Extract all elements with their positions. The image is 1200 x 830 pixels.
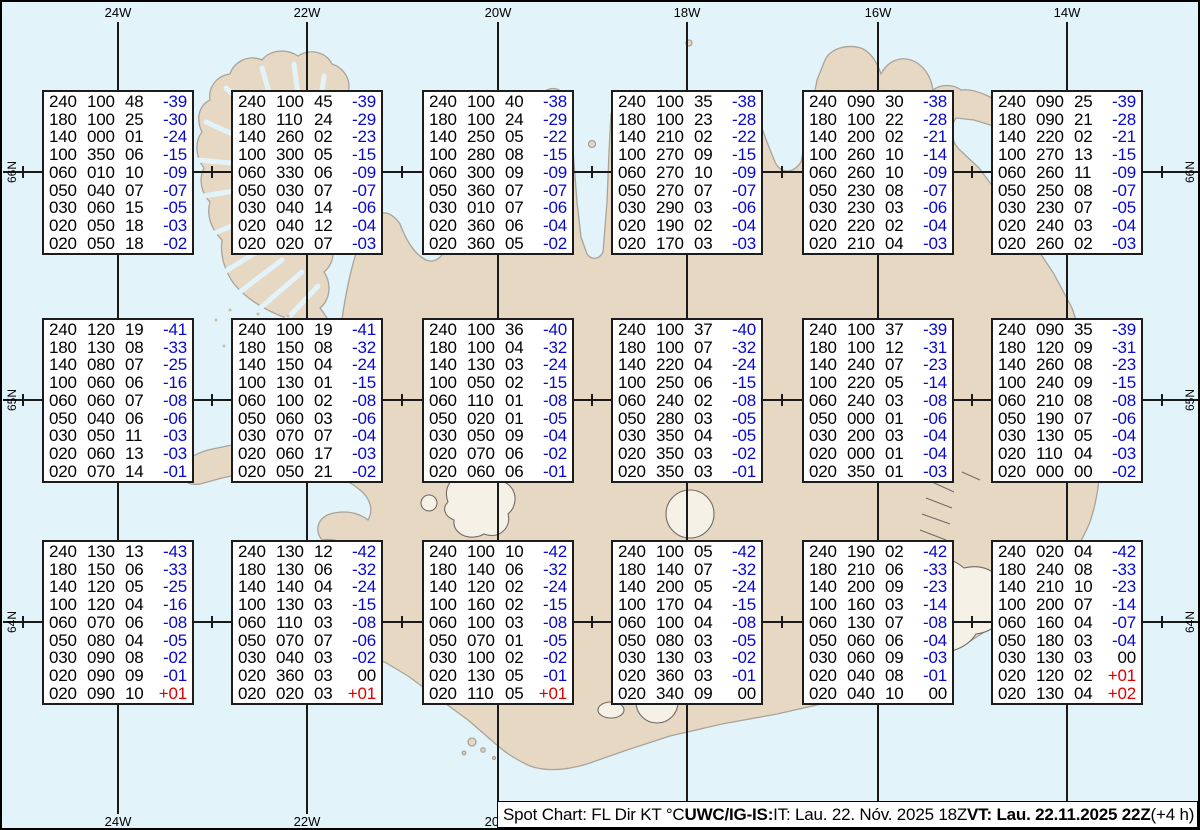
wind-direction-value: 260 (276, 128, 306, 146)
temperature-value: -05 (535, 410, 567, 428)
wind-direction-value: 230 (1036, 199, 1066, 217)
spot-table-row: 06024002-08 (618, 392, 756, 410)
wind-speed-value: 12 (314, 543, 336, 561)
temperature-value: -04 (915, 445, 947, 463)
spot-table-row: 18010022-28 (809, 111, 947, 129)
wind-speed-value: 02 (1074, 667, 1096, 685)
temperature-value: -15 (535, 146, 567, 164)
temperature-value: -15 (535, 374, 567, 392)
flight-level-value: 030 (998, 199, 1028, 217)
flight-level-value: 060 (238, 392, 268, 410)
spot-table-row: 06033006-09 (238, 164, 376, 182)
wind-speed-value: 03 (885, 392, 907, 410)
wind-direction-value: 100 (276, 392, 306, 410)
spot-table-row: 06011001-08 (429, 392, 567, 410)
temperature-value: -07 (915, 182, 947, 200)
temperature-value: -32 (535, 561, 567, 579)
spot-table-row: 06007006-08 (49, 614, 187, 632)
flight-level-value: 180 (998, 339, 1028, 357)
temperature-value: -28 (1104, 111, 1136, 129)
spot-table-row: 10027013-15 (998, 146, 1136, 164)
wind-speed-value: 04 (505, 339, 527, 357)
flight-level-value: 240 (998, 321, 1028, 339)
wind-speed-value: 02 (885, 217, 907, 235)
temperature-value: -15 (724, 146, 756, 164)
wind-direction-value: 120 (1036, 339, 1066, 357)
flight-level-value: 180 (238, 561, 268, 579)
spot-table-row: 02013005-01 (429, 667, 567, 685)
flight-level-value: 050 (238, 410, 268, 428)
spot-table-row: 14020002-21 (809, 128, 947, 146)
wind-direction-value: 040 (87, 182, 117, 200)
wind-direction-value: 050 (467, 427, 497, 445)
wind-speed-value: 08 (885, 182, 907, 200)
wind-direction-value: 120 (87, 578, 117, 596)
flight-level-value: 100 (429, 374, 459, 392)
wind-speed-value: 06 (694, 374, 716, 392)
temperature-value: -06 (344, 199, 376, 217)
wind-speed-value: 03 (694, 463, 716, 481)
wind-direction-value: 100 (656, 614, 686, 632)
flight-level-value: 240 (809, 321, 839, 339)
spot-table-row: 02017003-03 (618, 235, 756, 253)
temperature-value: -08 (1104, 392, 1136, 410)
graticule-cross-tick (22, 166, 24, 178)
spot-table: 24009025-3918009021-2814022002-211002701… (991, 90, 1143, 255)
spot-table: 24010048-3918010025-3014000001-241003500… (42, 90, 194, 255)
wind-direction-value: 090 (87, 685, 117, 703)
temperature-value: -06 (915, 199, 947, 217)
spot-table-row: 10022005-14 (809, 374, 947, 392)
spot-table-row: 14012002-24 (429, 578, 567, 596)
wind-direction-value: 130 (1036, 649, 1066, 667)
wind-direction-value: 090 (87, 649, 117, 667)
spot-table-row: 03013005-04 (998, 427, 1136, 445)
temperature-value: -04 (724, 217, 756, 235)
wind-speed-value: 05 (505, 667, 527, 685)
flight-level-value: 020 (429, 445, 459, 463)
wind-speed-value: 01 (885, 463, 907, 481)
flight-level-value: 030 (49, 649, 79, 667)
wind-speed-value: 03 (1074, 649, 1096, 667)
spot-table-row: 03013003-02 (618, 649, 756, 667)
spot-table-row: 05004006-06 (49, 410, 187, 428)
wind-speed-value: 02 (694, 392, 716, 410)
flight-level-value: 100 (998, 146, 1028, 164)
temperature-value: 00 (344, 667, 376, 685)
longitude-label-top: 24W (98, 5, 138, 20)
wind-direction-value: 060 (87, 374, 117, 392)
wind-direction-value: 080 (87, 356, 117, 374)
temperature-value: -02 (344, 463, 376, 481)
wind-direction-value: 240 (656, 392, 686, 410)
spot-table: 24009030-3818010022-2814020002-211002601… (802, 90, 954, 255)
flight-level-value: 180 (49, 561, 79, 579)
flight-level-value: 240 (429, 321, 459, 339)
wind-speed-value: 04 (125, 596, 147, 614)
temperature-value: -23 (344, 128, 376, 146)
temperature-value: -28 (724, 111, 756, 129)
spot-table-row: 05036007-07 (429, 182, 567, 200)
temperature-value: -40 (535, 321, 567, 339)
wind-speed-value: 03 (314, 667, 336, 685)
wind-speed-value: 17 (314, 445, 336, 463)
temperature-value: -06 (1104, 410, 1136, 428)
spot-table-row: 02012002+01 (998, 667, 1136, 685)
spot-table-row: 14012005-25 (49, 578, 187, 596)
temperature-value: -08 (344, 392, 376, 410)
spot-table-row: 02026002-03 (998, 235, 1136, 253)
temperature-value: -21 (1104, 128, 1136, 146)
wind-speed-value: 24 (505, 111, 527, 129)
wind-speed-value: 07 (505, 199, 527, 217)
temperature-value: -05 (724, 427, 756, 445)
flight-level-value: 240 (238, 543, 268, 561)
wind-speed-value: 08 (1074, 356, 1096, 374)
spot-table-row: 14008007-25 (49, 356, 187, 374)
flight-level-value: 140 (49, 356, 79, 374)
spot-table-row: 18010012-31 (809, 339, 947, 357)
flight-level-value: 180 (618, 111, 648, 129)
spot-table-row: 06027010-09 (618, 164, 756, 182)
flight-level-value: 060 (618, 614, 648, 632)
spot-table: 24019002-4218021006-3314020009-231001600… (802, 540, 954, 705)
spot-table-row: 18011024-29 (238, 111, 376, 129)
spot-table-row: 18024008-33 (998, 561, 1136, 579)
spot-table-row: 02036003-01 (618, 667, 756, 685)
spot-table-row: 14015004-24 (238, 356, 376, 374)
flight-level-value: 100 (998, 374, 1028, 392)
flight-level-value: 020 (49, 217, 79, 235)
temperature-value: -38 (915, 93, 947, 111)
wind-speed-value: 06 (505, 561, 527, 579)
spot-table-row: 24010037-39 (809, 321, 947, 339)
spot-table: 24010036-4018010004-3214013003-241000500… (422, 318, 574, 483)
flight-level-value: 180 (429, 561, 459, 579)
wind-speed-value: 03 (314, 685, 336, 703)
graticule-cross-tick (1161, 616, 1163, 628)
flight-level-value: 030 (238, 199, 268, 217)
wind-speed-value: 04 (694, 356, 716, 374)
spot-table-row: 06011003-08 (238, 614, 376, 632)
temperature-value: -08 (724, 614, 756, 632)
temperature-value: -01 (155, 667, 187, 685)
flight-level-value: 240 (998, 93, 1028, 111)
wind-direction-value: 270 (1036, 146, 1066, 164)
wind-direction-value: 100 (467, 649, 497, 667)
flight-level-value: 020 (49, 667, 79, 685)
temperature-value: -14 (915, 374, 947, 392)
wind-speed-value: 05 (125, 578, 147, 596)
flight-level-value: 180 (429, 111, 459, 129)
wind-speed-value: 06 (314, 561, 336, 579)
spot-table-row: 18015008-32 (238, 339, 376, 357)
flight-level-value: 050 (49, 182, 79, 200)
flight-level-value: 180 (809, 561, 839, 579)
temperature-value: -30 (155, 111, 187, 129)
spot-table-row: 24010010-42 (429, 543, 567, 561)
wind-direction-value: 120 (1036, 667, 1066, 685)
graticule-cross-tick (211, 166, 213, 178)
temperature-value: -02 (724, 649, 756, 667)
wind-speed-value: 03 (314, 614, 336, 632)
westman-island (462, 751, 466, 755)
flight-level-value: 140 (429, 128, 459, 146)
spot-table-row: 02007014-01 (49, 463, 187, 481)
wind-direction-value: 240 (847, 356, 877, 374)
spot-table-row: 02036006-04 (429, 217, 567, 235)
wind-direction-value: 010 (467, 199, 497, 217)
wind-direction-value: 350 (656, 463, 686, 481)
temperature-value: -02 (155, 235, 187, 253)
wind-speed-value: 18 (125, 235, 147, 253)
temperature-value: -08 (155, 392, 187, 410)
wind-direction-value: 250 (656, 374, 686, 392)
flight-level-value: 060 (49, 614, 79, 632)
flight-level-value: 240 (809, 543, 839, 561)
flight-level-value: 180 (618, 339, 648, 357)
flight-level-value: 030 (238, 427, 268, 445)
wind-speed-value: 02 (1074, 235, 1096, 253)
hrisey-island (589, 141, 596, 148)
wind-speed-value: 19 (125, 321, 147, 339)
wind-direction-value: 100 (467, 543, 497, 561)
spot-table-row: 14024007-23 (809, 356, 947, 374)
spot-table-row: 05004007-07 (49, 182, 187, 200)
temperature-value: -03 (915, 649, 947, 667)
wind-speed-value: 07 (694, 182, 716, 200)
temperature-value: -42 (724, 543, 756, 561)
wind-direction-value: 360 (467, 182, 497, 200)
spot-table-row: 10005002-15 (429, 374, 567, 392)
spot-table-row: 06001010-09 (49, 164, 187, 182)
wind-direction-value: 100 (276, 93, 306, 111)
spot-table-row: 18014006-32 (429, 561, 567, 579)
wind-direction-value: 280 (467, 146, 497, 164)
flight-level-value: 030 (618, 427, 648, 445)
spot-table-row: 02035003-02 (618, 445, 756, 463)
flight-level-value: 020 (49, 445, 79, 463)
wind-speed-value: 05 (885, 374, 907, 392)
flight-level-value: 020 (998, 463, 1028, 481)
temperature-value: -09 (1104, 164, 1136, 182)
spot-table: 24010037-4018010007-3214022004-241002500… (611, 318, 763, 483)
wind-speed-value: 06 (125, 561, 147, 579)
temperature-value: -16 (155, 596, 187, 614)
temperature-value: -32 (535, 339, 567, 357)
flight-level-value: 180 (49, 111, 79, 129)
flight-level-value: 020 (809, 217, 839, 235)
wind-direction-value: 280 (656, 410, 686, 428)
flight-level-value: 050 (618, 632, 648, 650)
flight-level-value: 020 (49, 235, 79, 253)
wind-speed-value: 03 (694, 199, 716, 217)
wind-speed-value: 02 (694, 217, 716, 235)
wind-speed-value: 07 (125, 392, 147, 410)
graticule-cross-tick (1161, 394, 1163, 406)
flight-level-value: 100 (49, 374, 79, 392)
flight-level-value: 180 (238, 339, 268, 357)
wind-speed-value: 03 (314, 649, 336, 667)
latitude-label-right: 65N (1183, 389, 1197, 411)
spot-table: 24010045-3918011024-2914026002-231003000… (231, 90, 383, 255)
temperature-value: -32 (344, 561, 376, 579)
wind-speed-value: 06 (125, 410, 147, 428)
wind-direction-value: 050 (276, 463, 306, 481)
wind-speed-value: 35 (1074, 321, 1096, 339)
spot-table: 24002004-4218024008-3314021010-231002000… (991, 540, 1143, 705)
temperature-value: -09 (155, 164, 187, 182)
flight-level-value: 180 (429, 339, 459, 357)
wind-speed-value: 07 (694, 339, 716, 357)
spot-table-row: 10026010-14 (809, 146, 947, 164)
temperature-value: -39 (344, 93, 376, 111)
temperature-value: -05 (724, 632, 756, 650)
flight-level-value: 020 (238, 217, 268, 235)
flight-level-value: 060 (429, 164, 459, 182)
spot-table-row: 03020003-04 (809, 427, 947, 445)
temperature-value: -04 (344, 217, 376, 235)
wind-direction-value: 210 (1036, 392, 1066, 410)
wind-direction-value: 110 (467, 392, 497, 410)
flight-level-value: 240 (618, 543, 648, 561)
spot-table-row: 14022002-21 (998, 128, 1136, 146)
temperature-value: -14 (1104, 596, 1136, 614)
wind-speed-value: 03 (505, 614, 527, 632)
flight-level-value: 180 (998, 111, 1028, 129)
wind-speed-value: 07 (314, 235, 336, 253)
temperature-value: -04 (915, 632, 947, 650)
flight-level-value: 140 (809, 128, 839, 146)
wind-speed-value: 04 (1074, 445, 1096, 463)
temperature-value: -02 (344, 649, 376, 667)
flight-level-value: 100 (809, 596, 839, 614)
wind-speed-value: 14 (314, 199, 336, 217)
caption-bold-text: UWC/IG-IS: (685, 805, 774, 825)
spot-table-row: 05007007-06 (238, 632, 376, 650)
spot-table-row: 0301300300 (998, 649, 1136, 667)
flight-level-value: 020 (238, 235, 268, 253)
wind-speed-value: 08 (125, 339, 147, 357)
wind-direction-value: 050 (87, 217, 117, 235)
wind-direction-value: 100 (87, 111, 117, 129)
flight-level-value: 100 (429, 596, 459, 614)
temperature-value: -06 (155, 410, 187, 428)
graticule-cross-tick (1161, 166, 1163, 178)
wind-speed-value: 25 (125, 111, 147, 129)
spot-table: 24010040-3818010024-2914025005-221002800… (422, 90, 574, 255)
wind-speed-value: 02 (885, 128, 907, 146)
caption-text: Spot Chart: FL Dir KT °C (503, 805, 685, 825)
wind-direction-value: 100 (467, 321, 497, 339)
wind-speed-value: 03 (1074, 217, 1096, 235)
wind-speed-value: 00 (1074, 463, 1096, 481)
flight-level-value: 050 (998, 632, 1028, 650)
temperature-value: -15 (155, 146, 187, 164)
temperature-value: -07 (344, 182, 376, 200)
wind-direction-value: 220 (847, 217, 877, 235)
spot-table-row: 10030005-15 (238, 146, 376, 164)
spot-table-row: 03009008-02 (49, 649, 187, 667)
temperature-value: -32 (344, 339, 376, 357)
wind-speed-value: 05 (505, 235, 527, 253)
spot-table-row: 14014004-24 (238, 578, 376, 596)
wind-direction-value: 070 (467, 632, 497, 650)
flight-level-value: 020 (238, 667, 268, 685)
spot-table-row: 02007006-02 (429, 445, 567, 463)
wind-speed-value: 09 (694, 685, 716, 703)
graticule-cross-tick (591, 166, 593, 178)
wind-direction-value: 100 (467, 614, 497, 632)
temperature-value: -40 (724, 321, 756, 339)
wind-direction-value: 090 (1036, 93, 1066, 111)
flight-level-value: 020 (998, 235, 1028, 253)
wind-speed-value: 18 (125, 217, 147, 235)
flight-level-value: 020 (618, 217, 648, 235)
wind-direction-value: 070 (87, 614, 117, 632)
wind-direction-value: 080 (656, 632, 686, 650)
wind-speed-value: 05 (314, 146, 336, 164)
wind-direction-value: 050 (87, 427, 117, 445)
wind-direction-value: 080 (87, 632, 117, 650)
wind-speed-value: 07 (885, 356, 907, 374)
temperature-value: -02 (724, 445, 756, 463)
wind-direction-value: 200 (656, 578, 686, 596)
wind-direction-value: 120 (467, 578, 497, 596)
wind-speed-value: 03 (694, 235, 716, 253)
flight-level-value: 240 (49, 543, 79, 561)
wind-speed-value: 04 (125, 632, 147, 650)
wind-direction-value: 040 (87, 410, 117, 428)
wind-direction-value: 120 (87, 596, 117, 614)
flight-level-value: 020 (998, 667, 1028, 685)
temperature-value: 00 (724, 685, 756, 703)
wind-direction-value: 140 (276, 578, 306, 596)
flight-level-value: 060 (49, 164, 79, 182)
wind-speed-value: 03 (314, 596, 336, 614)
westman-island (481, 748, 485, 752)
temperature-value: -03 (1104, 445, 1136, 463)
wind-speed-value: 08 (1074, 561, 1096, 579)
spot-table-row: 02000000-02 (998, 463, 1136, 481)
temperature-value: -38 (535, 93, 567, 111)
eiriksjokull-glacier (421, 495, 437, 511)
temperature-value: -15 (344, 374, 376, 392)
wind-direction-value: 000 (847, 410, 877, 428)
wind-direction-value: 200 (1036, 596, 1066, 614)
temperature-value: 00 (1104, 649, 1136, 667)
spot-table-row: 10017004-15 (618, 596, 756, 614)
spot-table-row: 24009030-38 (809, 93, 947, 111)
spot-table-row: 02002003+01 (238, 685, 376, 703)
temperature-value: -04 (535, 217, 567, 235)
spot-table-row: 24010037-40 (618, 321, 756, 339)
spot-table-row: 02005018-03 (49, 217, 187, 235)
spot-table-row: 10035006-15 (49, 146, 187, 164)
wind-direction-value: 360 (276, 667, 306, 685)
flight-level-value: 140 (809, 356, 839, 374)
spot-table-row: 24010040-38 (429, 93, 567, 111)
spot-table-row: 06010002-08 (238, 392, 376, 410)
spot-table: 24012019-4118013008-3314008007-251000600… (42, 318, 194, 483)
temperature-value: -02 (535, 445, 567, 463)
spot-table-row: 10028008-15 (429, 146, 567, 164)
graticule-cross-tick (401, 166, 403, 178)
spot-table-row: 03023007-05 (998, 199, 1136, 217)
temperature-value: -24 (344, 356, 376, 374)
wind-speed-value: 10 (885, 164, 907, 182)
wind-speed-value: 07 (314, 182, 336, 200)
